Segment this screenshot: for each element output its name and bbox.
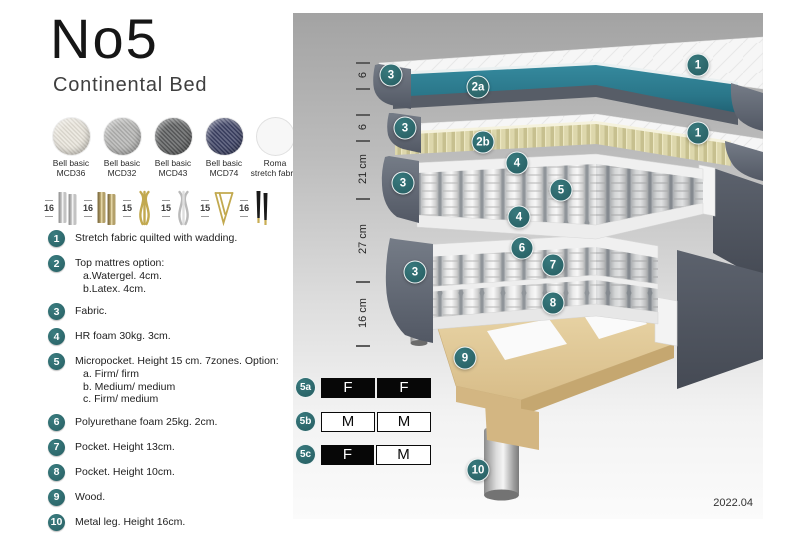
cylinder-brass-icon — [94, 188, 119, 228]
leg-height-value: 16 — [83, 203, 93, 213]
spec-text-block: HR foam 30kg. 3cm. — [75, 329, 171, 345]
fabric-swatch-icon — [257, 118, 294, 155]
firmness-row-5b: 5b M M — [295, 411, 431, 432]
spec-sub-item: a.Watergel. 4cm. — [83, 270, 164, 283]
spec-number-badge: 8 — [48, 464, 65, 481]
spec-sub-item: b.Latex. 4cm. — [83, 283, 164, 296]
spec-item-4: 4 HR foam 30kg. 3cm. — [48, 329, 294, 345]
callout-badge-1: 1 — [687, 122, 710, 145]
spec-number-badge: 9 — [48, 489, 65, 506]
spec-text: Stretch fabric quilted with wadding. — [75, 231, 237, 245]
ruler-tick — [356, 198, 370, 200]
fabric-label: Bell basic MCD32 — [104, 158, 140, 178]
fabric-swatch-icon — [206, 118, 243, 155]
leg-option-cylinder-brass: 16 — [83, 188, 119, 228]
leg-height-value: 16 — [44, 203, 54, 213]
callout-badge-6: 6 — [511, 237, 534, 260]
firmness-cell: F — [321, 378, 375, 398]
spec-number-badge: 4 — [48, 328, 65, 345]
fabric-label: Bell basic MCD43 — [155, 158, 191, 178]
firmness-cell: F — [321, 445, 374, 465]
spec-item-3: 3 Fabric. — [48, 304, 294, 320]
firmness-cell: M — [321, 412, 375, 432]
ruler-label: 6 — [357, 72, 369, 78]
page-title: No5 — [50, 10, 159, 69]
spec-sub-item: c. Firm/ medium — [83, 393, 279, 406]
spec-sub-item: b. Medium/ medium — [83, 381, 279, 394]
leg-height-measure: 16 — [239, 197, 249, 219]
spec-text: Pocket. Height 10cm. — [75, 465, 175, 479]
leg-option-twisted-silver: 15 — [161, 188, 197, 228]
leg-height-value: 16 — [239, 203, 249, 213]
ruler-tick — [356, 88, 370, 90]
fabric-swatch-icon — [53, 118, 90, 155]
ruler-label: 27 cm — [357, 224, 369, 254]
callout-badge-3: 3 — [392, 172, 415, 195]
cylinder-silver-icon — [55, 188, 80, 228]
callout-badge-9: 9 — [454, 347, 477, 370]
spec-text-block: Stretch fabric quilted with wadding. — [75, 231, 237, 247]
callout-badge-1: 1 — [687, 54, 710, 77]
ruler-tick — [356, 62, 370, 64]
spec-text: Wood. — [75, 490, 105, 504]
ruler-label: 16 cm — [357, 298, 369, 328]
leg-option-tapered-black: 16 — [239, 188, 275, 228]
fabric-option: Bell basic MCD32 — [100, 118, 144, 178]
callout-badge-8: 8 — [542, 292, 565, 315]
tapered-black-icon — [250, 188, 275, 228]
spec-text: Pocket. Height 13cm. — [75, 440, 175, 454]
spec-text: Top mattres option: — [75, 256, 164, 270]
firmness-cell: M — [377, 412, 431, 432]
firmness-badge: 5c — [295, 444, 316, 465]
spec-text: Metal leg. Height 16cm. — [75, 515, 185, 529]
callout-badge-3: 3 — [380, 64, 403, 87]
ruler-tick — [356, 114, 370, 116]
leg-height-measure: 15 — [122, 197, 132, 219]
leg-height-measure: 16 — [44, 197, 54, 219]
fabric-option: Bell basic MCD74 — [202, 118, 246, 178]
ruler-tick — [356, 281, 370, 283]
ruler-label: 6 — [357, 124, 369, 130]
leg-height-measure: 16 — [83, 197, 93, 219]
fabric-swatch-icon — [104, 118, 141, 155]
fabric-swatch-icon — [155, 118, 192, 155]
firmness-cell: M — [376, 445, 431, 465]
spec-sub-item: a. Firm/ firm — [83, 368, 279, 381]
ruler-tick — [356, 140, 370, 142]
callout-badge-5: 5 — [550, 179, 573, 202]
spec-text: Polyurethane foam 25kg. 2cm. — [75, 415, 217, 429]
fabric-label: Bell basic MCD36 — [53, 158, 89, 178]
infographic-root: No5 Continental Bed Bell basic MCD36 Bel… — [0, 0, 800, 533]
callout-badge-3: 3 — [404, 261, 427, 284]
leg-option-cylinder-silver: 16 — [44, 188, 80, 228]
spec-number-badge: 5 — [48, 353, 65, 370]
spec-text-block: Polyurethane foam 25kg. 2cm. — [75, 415, 217, 431]
spec-item-9: 9 Wood. — [48, 490, 294, 506]
spec-item-7: 7 Pocket. Height 13cm. — [48, 440, 294, 456]
spec-text: HR foam 30kg. 3cm. — [75, 329, 171, 343]
page-subtitle: Continental Bed — [53, 74, 207, 97]
spec-number-badge: 7 — [48, 439, 65, 456]
firmness-row-5c: 5c F M — [295, 444, 431, 465]
spec-text-block: Top mattres option:a.Watergel. 4cm.b.Lat… — [75, 256, 164, 295]
spec-item-6: 6 Polyurethane foam 25kg. 2cm. — [48, 415, 294, 431]
firmness-row-5a: 5a F F — [295, 377, 431, 398]
mattress-layer — [382, 154, 715, 239]
leg-height-measure: 15 — [161, 197, 171, 219]
callout-badge-4: 4 — [508, 206, 531, 229]
spec-text: Micropocket. Height 15 cm. 7zones. Optio… — [75, 354, 279, 368]
spec-text-block: Micropocket. Height 15 cm. 7zones. Optio… — [75, 354, 279, 406]
spec-number-badge: 1 — [48, 230, 65, 247]
callout-badge-7: 7 — [542, 254, 565, 277]
ruler-tick — [356, 345, 370, 347]
fabric-options: Bell basic MCD36 Bell basic MCD32 Bell b… — [49, 118, 297, 178]
leg-height-value: 15 — [161, 203, 171, 213]
spec-text-block: Metal leg. Height 16cm. — [75, 515, 185, 531]
ruler-label: 21 cm — [357, 154, 369, 184]
fabric-option: Roma stretch fabric — [253, 118, 297, 178]
spec-item-10: 10 Metal leg. Height 16cm. — [48, 515, 294, 531]
callout-badge-10: 10 — [467, 459, 490, 482]
spec-text-block: Wood. — [75, 490, 105, 506]
version-label: 2022.04 — [713, 497, 753, 509]
spec-number-badge: 6 — [48, 414, 65, 431]
hairpin-gold-icon — [211, 188, 236, 228]
spec-item-1: 1 Stretch fabric quilted with wadding. — [48, 231, 294, 247]
firmness-bar: F F — [321, 378, 431, 398]
leg-option-hairpin-gold: 15 — [200, 188, 236, 228]
spec-item-8: 8 Pocket. Height 10cm. — [48, 465, 294, 481]
spec-text: Fabric. — [75, 304, 107, 318]
diagram-panel: 6621 cm27 cm16 cm 132a132b45436738910 5a… — [293, 13, 763, 519]
leg-option-twisted-gold: 15 — [122, 188, 158, 228]
spec-text-block: Fabric. — [75, 304, 107, 320]
spec-text-block: Pocket. Height 13cm. — [75, 440, 175, 456]
twisted-gold-icon — [133, 188, 158, 228]
leg-options: 16 16 15 15 15 16 — [44, 188, 275, 228]
firmness-badge: 5b — [295, 411, 316, 432]
firmness-badge: 5a — [295, 377, 316, 398]
leg-height-measure: 15 — [200, 197, 210, 219]
callout-badge-3: 3 — [394, 117, 417, 140]
twisted-silver-icon — [172, 188, 197, 228]
callout-badge-4: 4 — [506, 152, 529, 175]
leg-height-value: 15 — [200, 203, 210, 213]
callout-badge-2a: 2a — [467, 76, 490, 99]
spec-number-badge: 2 — [48, 255, 65, 272]
fabric-option: Bell basic MCD36 — [49, 118, 93, 178]
spec-item-5: 5 Micropocket. Height 15 cm. 7zones. Opt… — [48, 354, 294, 406]
callout-badge-2b: 2b — [472, 131, 495, 154]
spec-number-badge: 3 — [48, 303, 65, 320]
fabric-label: Bell basic MCD74 — [206, 158, 242, 178]
spec-number-badge: 10 — [48, 514, 65, 531]
leg-height-value: 15 — [122, 203, 132, 213]
firmness-bar: F M — [321, 445, 431, 465]
info-panel: No5 Continental Bed Bell basic MCD36 Bel… — [0, 0, 292, 533]
fabric-option: Bell basic MCD43 — [151, 118, 195, 178]
spec-item-2: 2 Top mattres option:a.Watergel. 4cm.b.L… — [48, 256, 294, 295]
spec-list: 1 Stretch fabric quilted with wadding. 2… — [48, 231, 294, 533]
firmness-bar: M M — [321, 412, 431, 432]
firmness-cell: F — [377, 378, 431, 398]
spec-text-block: Pocket. Height 10cm. — [75, 465, 175, 481]
